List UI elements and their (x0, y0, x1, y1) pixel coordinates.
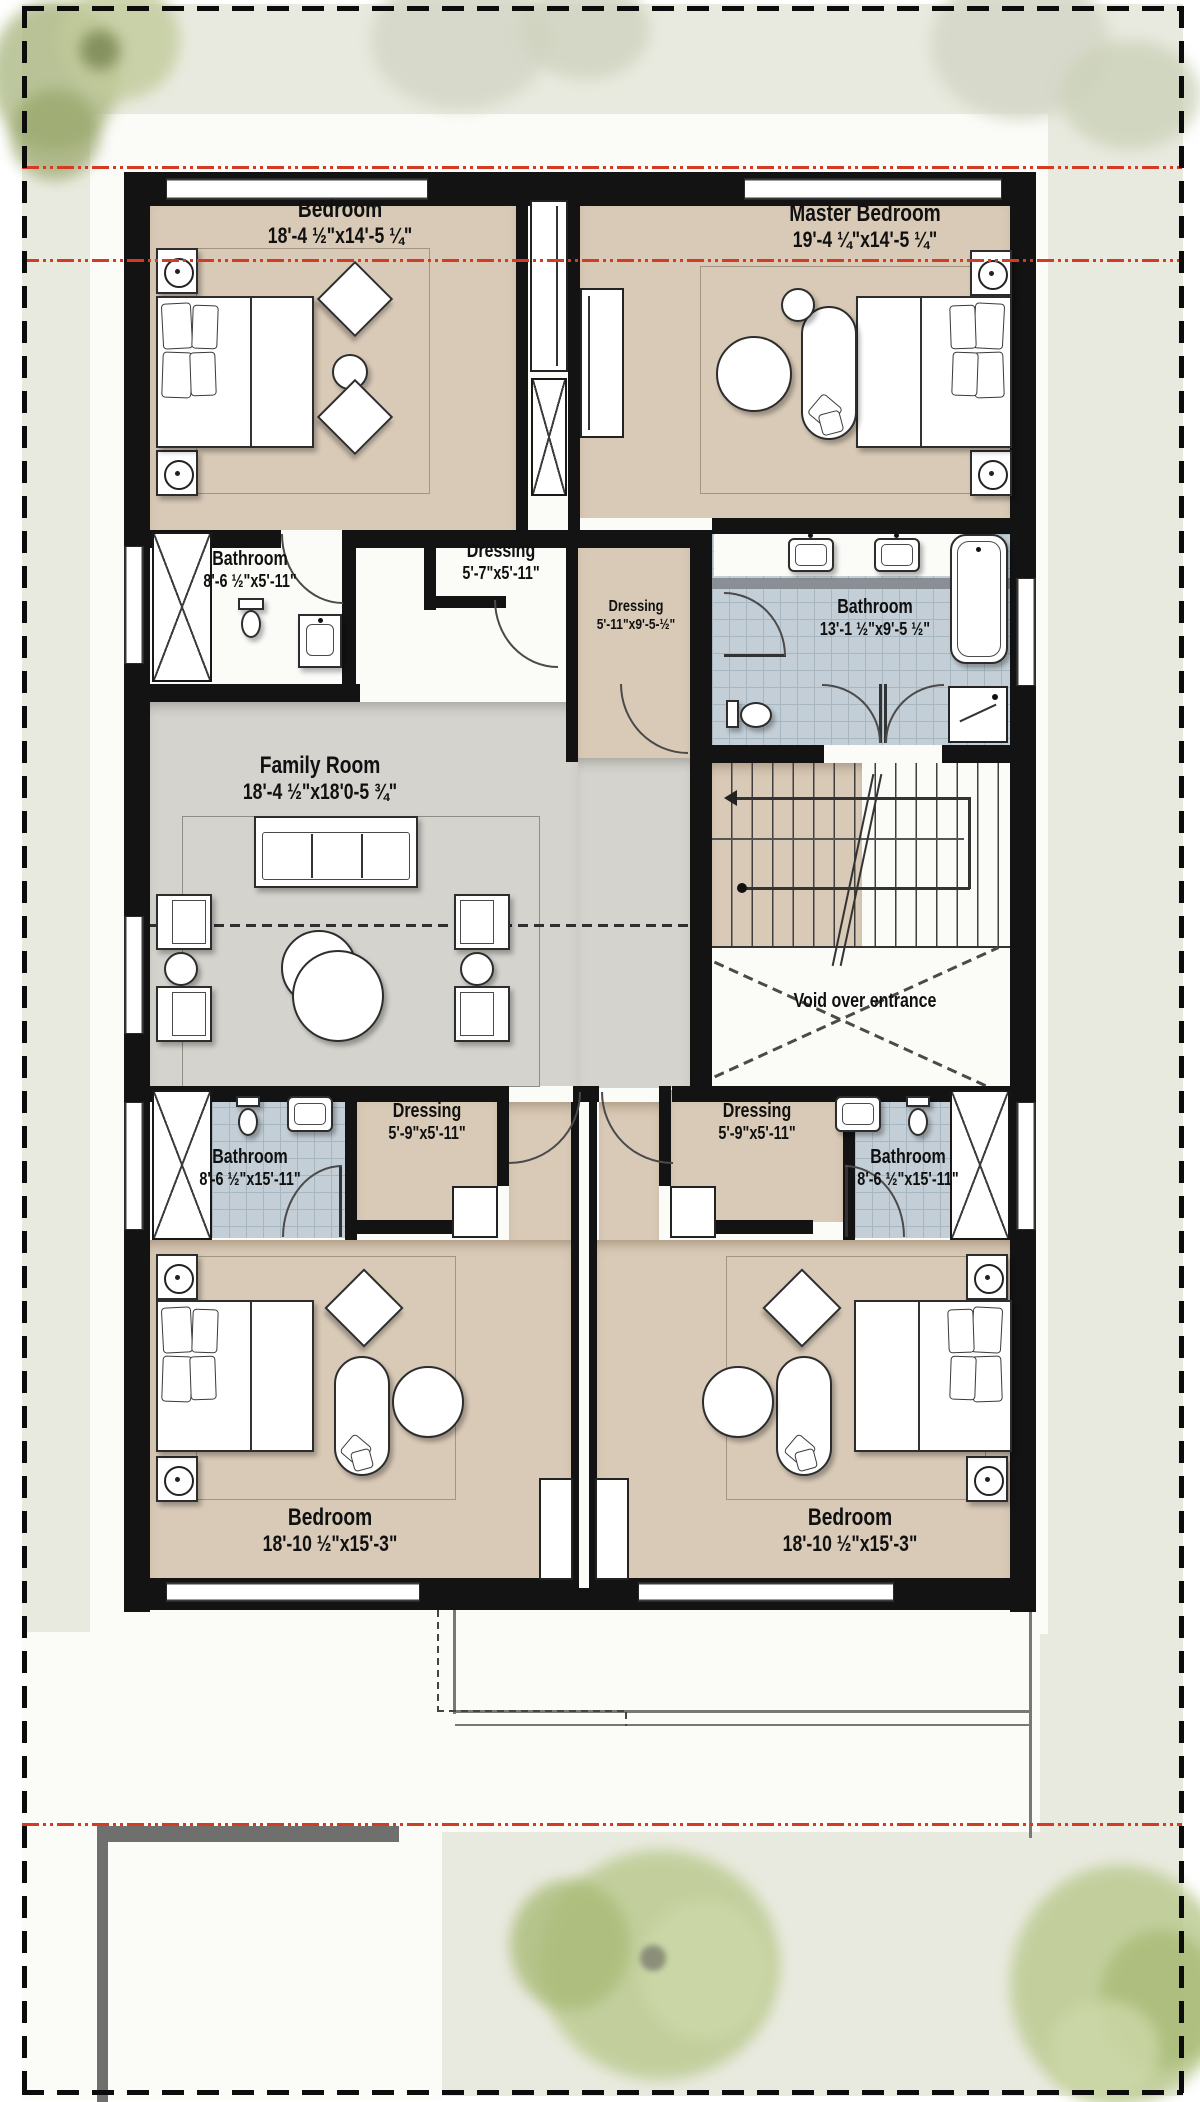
pillow (191, 1309, 219, 1354)
pillow (161, 351, 193, 398)
room-dims: 18'-10 ½"x15'-3" (730, 1531, 970, 1556)
toilet-bowl (908, 1108, 928, 1136)
stair-treads (712, 763, 1010, 946)
pillow (971, 1306, 1003, 1354)
tree-trunk (640, 1945, 666, 1971)
room-name: Dressing (588, 598, 684, 616)
faucet (318, 618, 323, 623)
tree-foliage (1050, 2000, 1160, 2100)
section-line (22, 259, 1182, 262)
wall-cavity (579, 1102, 589, 1588)
room-dims: 5'-11"x9'-5-½" (588, 616, 684, 633)
blanket-line (920, 298, 922, 446)
sheet-border (22, 6, 1183, 11)
faucet (808, 533, 813, 538)
room-dims: 19'-4 ¼"x14'-5 ¼" (733, 227, 997, 252)
faucet (894, 533, 899, 538)
wardrobe-niche (670, 1186, 716, 1238)
terrace-line (455, 1724, 1032, 1726)
round-chair (716, 336, 792, 412)
toilet-tank (726, 700, 739, 728)
wall (124, 172, 150, 1612)
room-name: Master Bedroom (733, 200, 997, 227)
pillow (191, 305, 219, 350)
blanket-line (250, 298, 252, 446)
wall (942, 745, 1012, 763)
armchair-seat (172, 900, 206, 944)
lamp-icon (164, 258, 194, 288)
room-name: Bedroom (212, 196, 468, 223)
dresser (580, 288, 624, 438)
closet-crossed (531, 378, 567, 496)
room-dims: 8'-6 ½"x5'-11" (170, 571, 330, 592)
stair-path (732, 797, 970, 800)
wall (712, 745, 824, 763)
wall (516, 198, 528, 530)
room-dims: 18'-10 ½"x15'-3" (210, 1531, 450, 1556)
armchair-seat (460, 900, 494, 944)
floor-void (712, 950, 1010, 1086)
pillow (189, 352, 217, 397)
armchair-seat (460, 992, 494, 1036)
room-dims: 13'-1 ½"x9'-5 ½" (771, 619, 979, 640)
room-dims: 18'-4 ½"x14'-5 ¼" (212, 223, 468, 248)
terrace-wall (97, 1826, 108, 2102)
stair-path (968, 797, 971, 889)
window (1016, 578, 1036, 686)
room-name: Bedroom (730, 1504, 970, 1531)
sofa-divider (311, 834, 313, 878)
wardrobe (595, 1478, 629, 1580)
pillow (161, 1306, 193, 1354)
wall (712, 518, 1012, 534)
coffee-table (292, 950, 384, 1042)
room-label-family-room: Family Room 18'-4 ½"x18'0-5 ¾" (170, 752, 470, 804)
floor-family-room (578, 758, 690, 1088)
round-chair (392, 1366, 464, 1438)
nightstand (966, 1254, 1008, 1300)
pillow (947, 1309, 975, 1354)
toilet-tank (906, 1096, 930, 1107)
toilet-tank (238, 598, 264, 610)
wall (128, 684, 360, 702)
sheet-border (22, 2090, 1183, 2095)
room-label-bathroom-top-left: Bathroom 8'-6 ½"x5'-11" (150, 548, 350, 591)
window (638, 1582, 894, 1602)
room-label-bathroom-master: Bathroom 13'-1 ½"x9'-5 ½" (745, 596, 1005, 639)
room-name: Bathroom (170, 548, 330, 571)
wall (568, 530, 690, 548)
sheet-border (1179, 6, 1184, 2094)
wall (566, 530, 578, 762)
canopy-dashed-line (437, 1710, 627, 1712)
window (124, 1102, 144, 1230)
tree-foliage (510, 1880, 630, 2010)
toilet-bowl (238, 1108, 258, 1136)
floor-plan-sheet: Bedroom 18'-4 ½"x14'-5 ¼" Master Bedroom… (0, 0, 1200, 2102)
side-table (164, 952, 198, 986)
sink-basin (881, 544, 913, 566)
pillow (949, 1356, 977, 1401)
lamp-icon (974, 1466, 1004, 1496)
sink-basin (795, 544, 827, 566)
room-label-dressing-top: Dressing 5'-7"x5'-11" (436, 540, 566, 583)
sheet-white-area (440, 1610, 1040, 1832)
wall (568, 198, 580, 532)
toilet-bowl (241, 610, 261, 638)
sofa-seat (262, 832, 410, 880)
dresser-panel (588, 296, 590, 430)
closet (530, 200, 568, 372)
family-room-dashed-line (150, 924, 690, 927)
room-dims: 5'-9"x5'-11" (697, 1123, 817, 1144)
room-name: Void over entrance (753, 990, 977, 1013)
terrace-line (453, 1610, 456, 1714)
blanket-line (918, 1302, 920, 1450)
nightstand (970, 250, 1012, 296)
side-table (460, 952, 494, 986)
window (744, 178, 1002, 200)
window (124, 916, 144, 1034)
room-dims: 5'-7"x5'-11" (449, 563, 553, 584)
sheet-white-area (22, 1632, 442, 2100)
room-name: Bathroom (170, 1146, 330, 1169)
toilet-bowl (740, 702, 772, 728)
room-dims: 18'-4 ½"x18'0-5 ¾" (200, 779, 440, 804)
sheet-border (22, 6, 27, 2094)
stair-edge (712, 946, 1010, 948)
terrace-wall (97, 1826, 399, 1842)
pillow (951, 352, 979, 397)
room-label-dressing-bottom-left: Dressing 5'-9"x5'-11" (352, 1100, 502, 1143)
round-chair (702, 1366, 774, 1438)
sink-basin (842, 1103, 874, 1125)
room-label-master-bedroom: Master Bedroom 19'-4 ¼"x14'-5 ¼" (700, 200, 1030, 252)
pillow (161, 302, 193, 350)
stair-direction-arrow (716, 790, 737, 806)
window (1016, 1102, 1036, 1230)
toilet-tank (236, 1096, 260, 1107)
lamp-icon (974, 1264, 1004, 1294)
stair-path-start (737, 883, 747, 893)
sink-basin (294, 1103, 326, 1125)
lamp-icon (164, 460, 194, 490)
nightstand (966, 1456, 1008, 1502)
tree-foliage (640, 1900, 770, 2040)
wall (715, 1220, 813, 1234)
nightstand (156, 248, 198, 294)
room-label-dressing-central: Dressing 5'-11"x9'-5-½" (576, 598, 696, 633)
shower-corner (948, 686, 1008, 743)
pillow (973, 302, 1005, 350)
door-leaf (591, 1088, 595, 1102)
lamp-icon (978, 260, 1008, 290)
lamp-icon (164, 1466, 194, 1496)
room-dims: 8'-6 ½"x15'-11" (830, 1169, 987, 1190)
pillow (161, 1355, 193, 1402)
window (166, 1582, 420, 1602)
wardrobe-niche (452, 1186, 498, 1238)
window (124, 546, 144, 664)
room-name: Family Room (200, 752, 440, 779)
room-label-void: Void over entrance (725, 990, 1005, 1013)
shower-knob (992, 694, 998, 700)
room-label-bedroom-bottom-left: Bedroom 18'-10 ½"x15'-3" (180, 1504, 480, 1556)
canopy-dashed-line (437, 1610, 439, 1712)
wall (344, 530, 434, 548)
wall (357, 1220, 455, 1234)
room-name: Dressing (697, 1100, 817, 1123)
armchair-seat (172, 992, 206, 1036)
room-name: Bathroom (830, 1146, 987, 1169)
blanket-line (250, 1302, 252, 1450)
nightstand (970, 450, 1012, 496)
sofa-divider (361, 834, 363, 878)
stair-landing-line (712, 838, 964, 840)
room-name: Dressing (449, 540, 553, 563)
closet-panel (556, 206, 558, 366)
wall (1010, 172, 1036, 1612)
wardrobe (539, 1478, 573, 1580)
room-label-bathroom-bottom-right: Bathroom 8'-6 ½"x15'-11" (810, 1146, 1006, 1189)
room-label-bedroom-bottom-right: Bedroom 18'-10 ½"x15'-3" (700, 1504, 1000, 1556)
sink-basin (306, 624, 334, 656)
vanity-counter (714, 534, 964, 576)
section-line (22, 166, 1182, 169)
pillow (189, 1356, 217, 1401)
pouf (781, 288, 815, 322)
canopy-dashed-line (625, 1712, 627, 1726)
nightstand (156, 450, 198, 496)
bathtub-drain (976, 547, 981, 552)
lamp-icon (164, 1264, 194, 1294)
room-label-dressing-bottom-right: Dressing 5'-9"x5'-11" (682, 1100, 832, 1143)
tree-foliage (80, 30, 120, 70)
room-dims: 8'-6 ½"x15'-11" (170, 1169, 330, 1190)
lamp-icon (978, 460, 1008, 490)
room-label-bedroom-top-left: Bedroom 18'-4 ½"x14'-5 ¼" (180, 196, 500, 248)
room-name: Bedroom (210, 1504, 450, 1531)
room-name: Bathroom (771, 596, 979, 619)
pillow (949, 305, 977, 350)
room-label-bathroom-bottom-left: Bathroom 8'-6 ½"x15'-11" (150, 1146, 350, 1189)
room-name: Dressing (367, 1100, 487, 1123)
room-dims: 5'-9"x5'-11" (367, 1123, 487, 1144)
nightstand (156, 1254, 198, 1300)
terrace-line (1029, 1610, 1032, 1838)
nightstand (156, 1456, 198, 1502)
section-line (22, 1823, 1182, 1826)
